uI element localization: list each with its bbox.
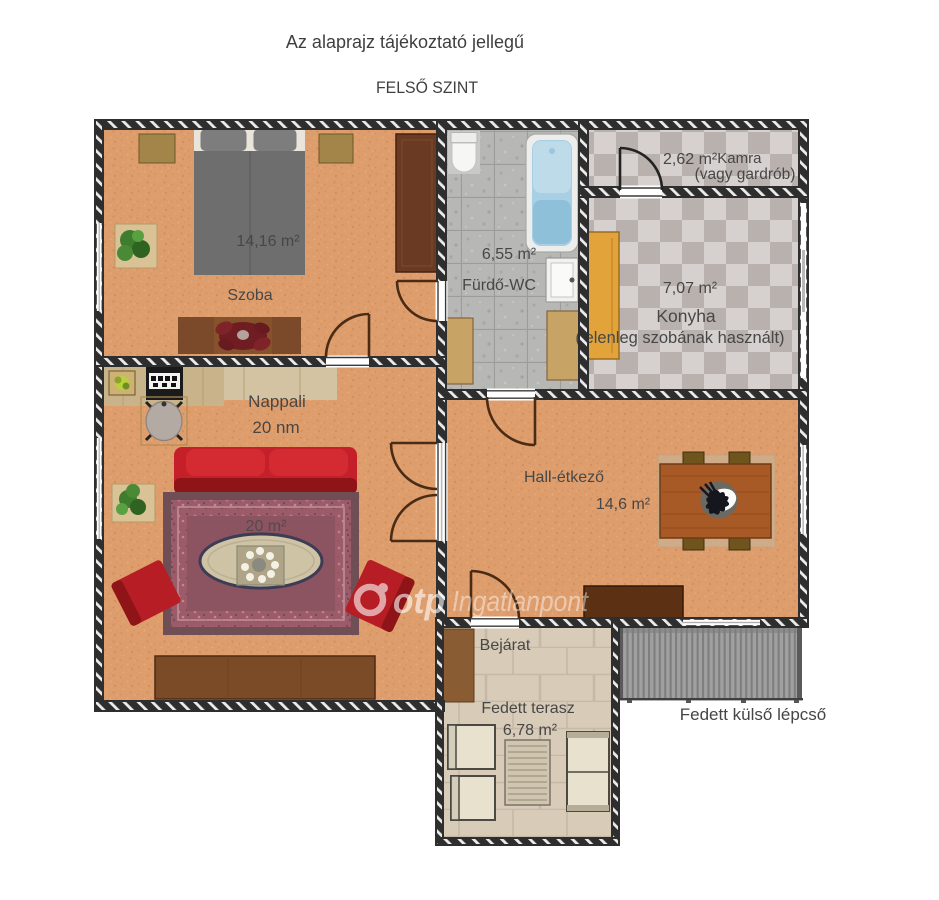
- svg-text:Ingatlanpont: Ingatlanpont: [452, 586, 590, 618]
- svg-text:Szoba: Szoba: [227, 287, 272, 304]
- svg-text:6,78 m²: 6,78 m²: [503, 722, 558, 739]
- svg-text:Konyha: Konyha: [656, 306, 716, 326]
- svg-text:Hall-étkező: Hall-étkező: [524, 469, 604, 486]
- svg-text:Fürdő-WC: Fürdő-WC: [462, 277, 536, 294]
- svg-text:(vagy gardrób): (vagy gardrób): [695, 166, 796, 183]
- svg-text:6,55 m²: 6,55 m²: [482, 246, 537, 263]
- svg-text:otp: otp: [393, 580, 445, 621]
- svg-text:14,6 m²: 14,6 m²: [596, 496, 651, 513]
- svg-text:(jelenleg szobának használt): (jelenleg szobának használt): [575, 329, 784, 347]
- svg-text:20 nm: 20 nm: [252, 418, 299, 437]
- svg-text:Nappali: Nappali: [248, 392, 306, 411]
- svg-text:Bejárat: Bejárat: [480, 637, 531, 654]
- svg-text:20 m²: 20 m²: [246, 518, 288, 535]
- svg-text:Fedett terasz: Fedett terasz: [481, 700, 574, 717]
- svg-text:Fedett külső lépcső: Fedett külső lépcső: [680, 705, 826, 724]
- svg-text:14,16 m²: 14,16 m²: [236, 233, 300, 250]
- svg-text:FELSŐ SZINT: FELSŐ SZINT: [376, 78, 478, 97]
- svg-text:Az alaprajz tájékoztató jelleg: Az alaprajz tájékoztató jellegű: [286, 32, 524, 52]
- svg-text:7,07 m²: 7,07 m²: [663, 280, 718, 297]
